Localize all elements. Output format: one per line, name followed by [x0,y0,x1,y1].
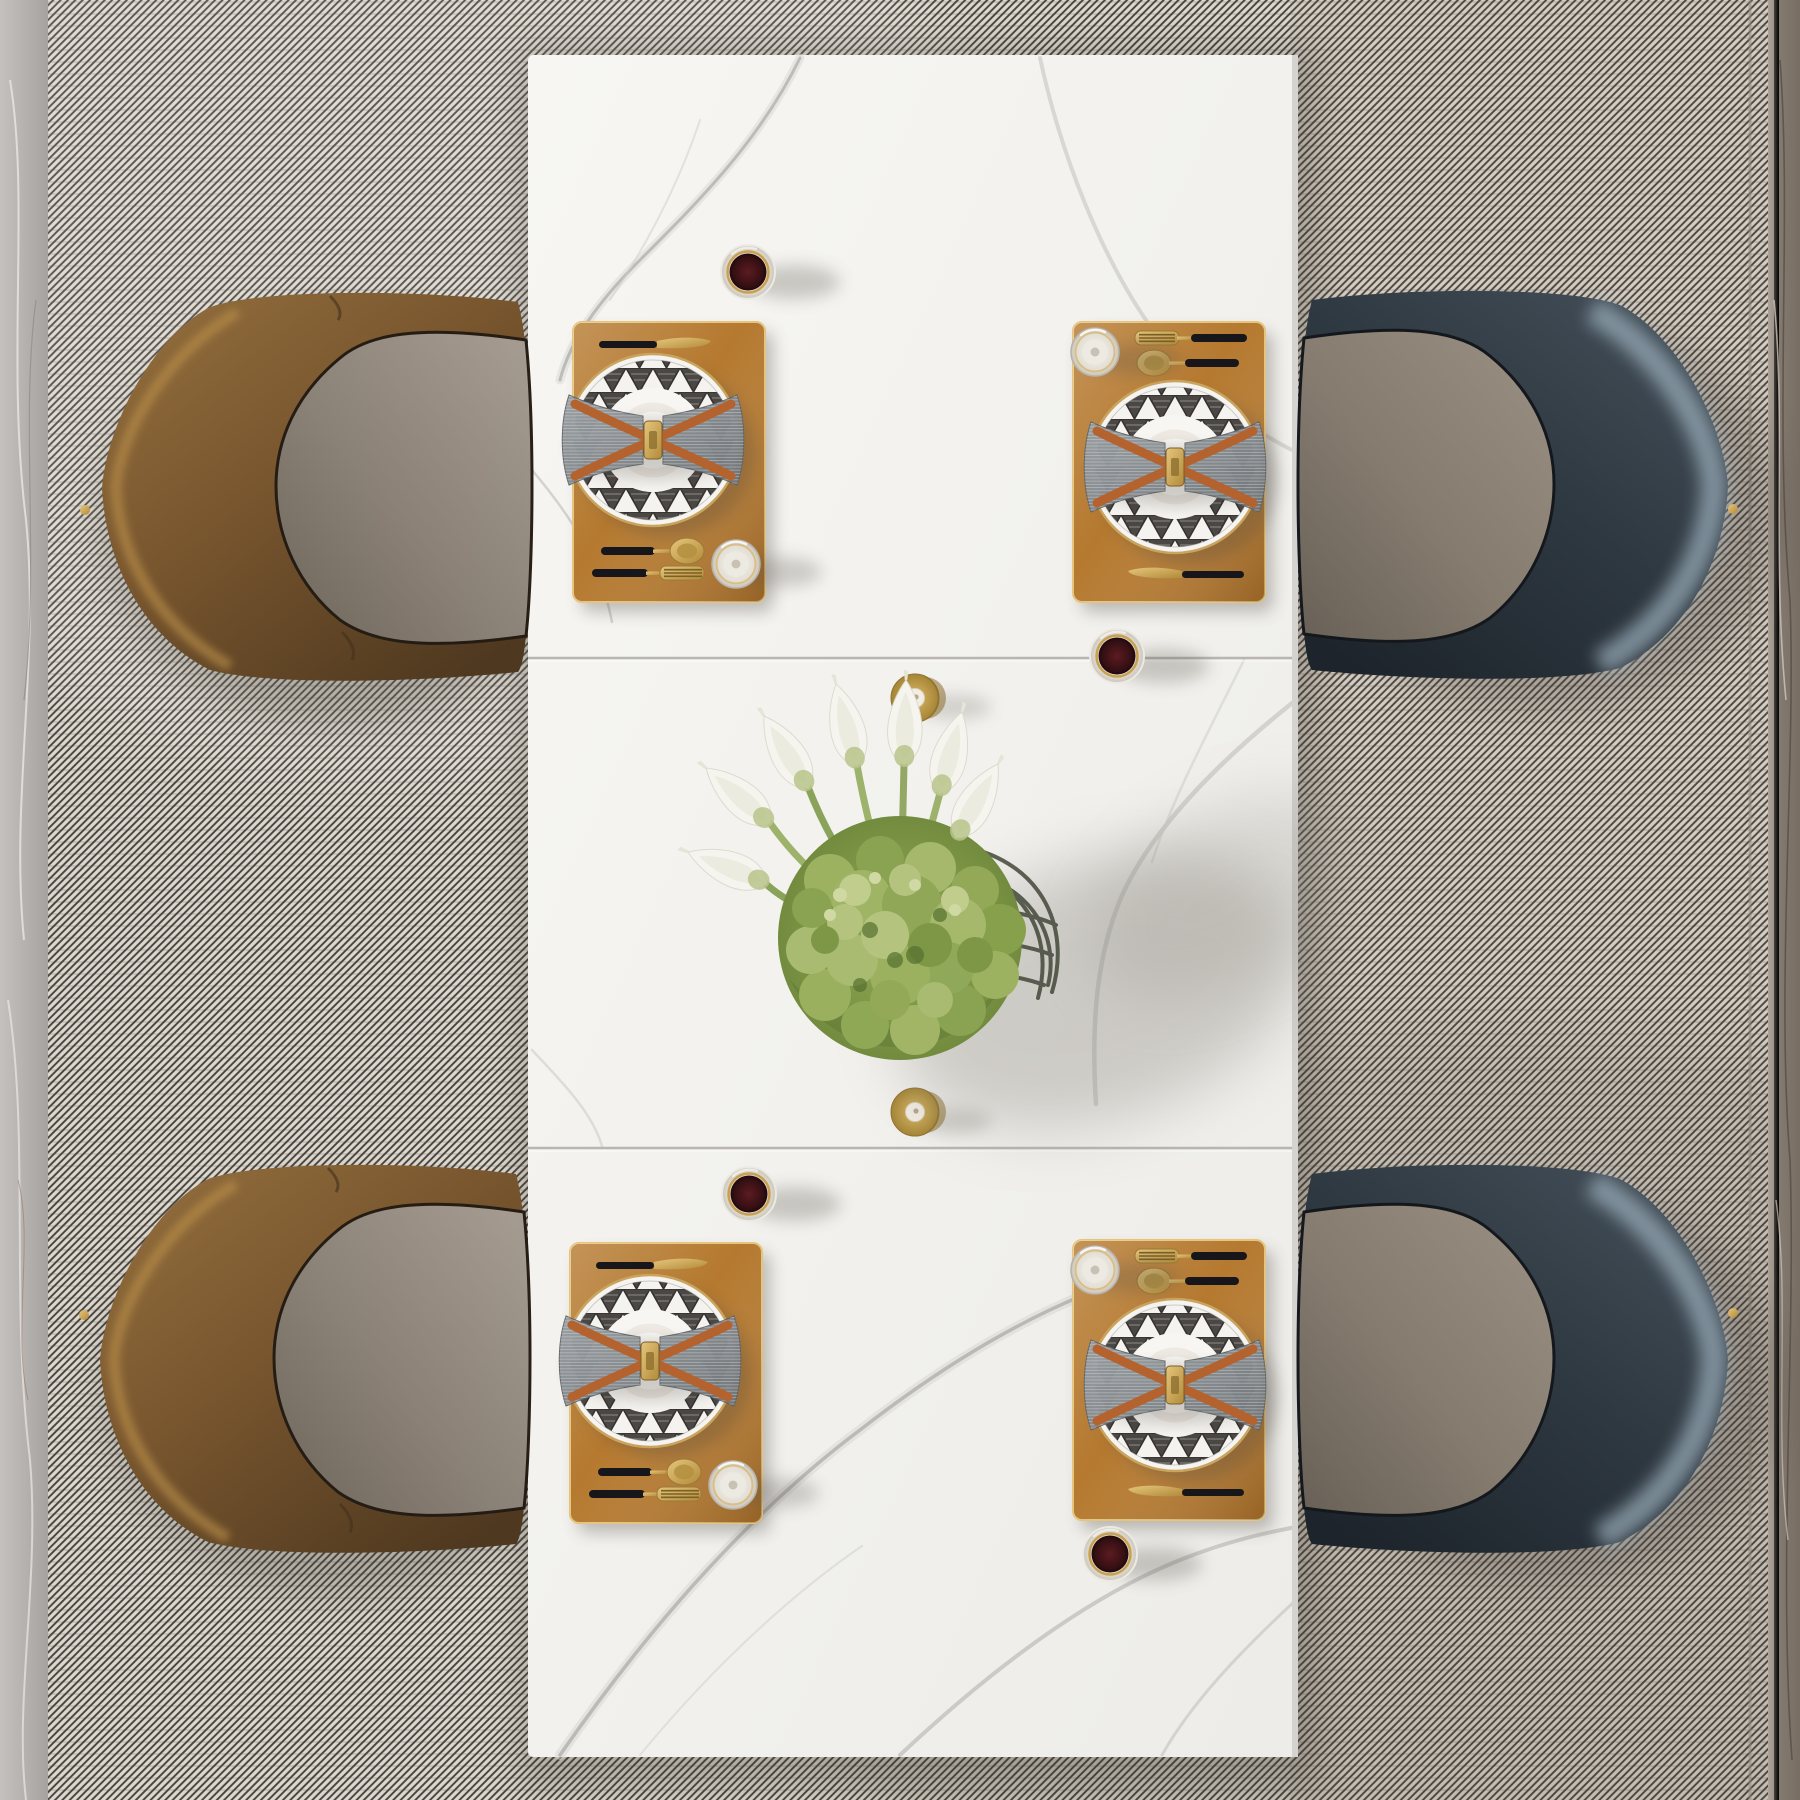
place-setting-bottom-right [1071,1240,1277,1530]
chair-bottom-left [100,1165,530,1553]
marble-floor-right [1768,0,1800,1800]
chair-top-left [102,293,532,681]
chair-top-right [1298,291,1728,679]
scene-canvas [0,0,1800,1800]
marble-floor-left [0,0,48,1800]
place-setting-top-right [1071,322,1277,612]
dining-scene [0,0,1800,1800]
chair-bottom-right [1298,1165,1728,1553]
